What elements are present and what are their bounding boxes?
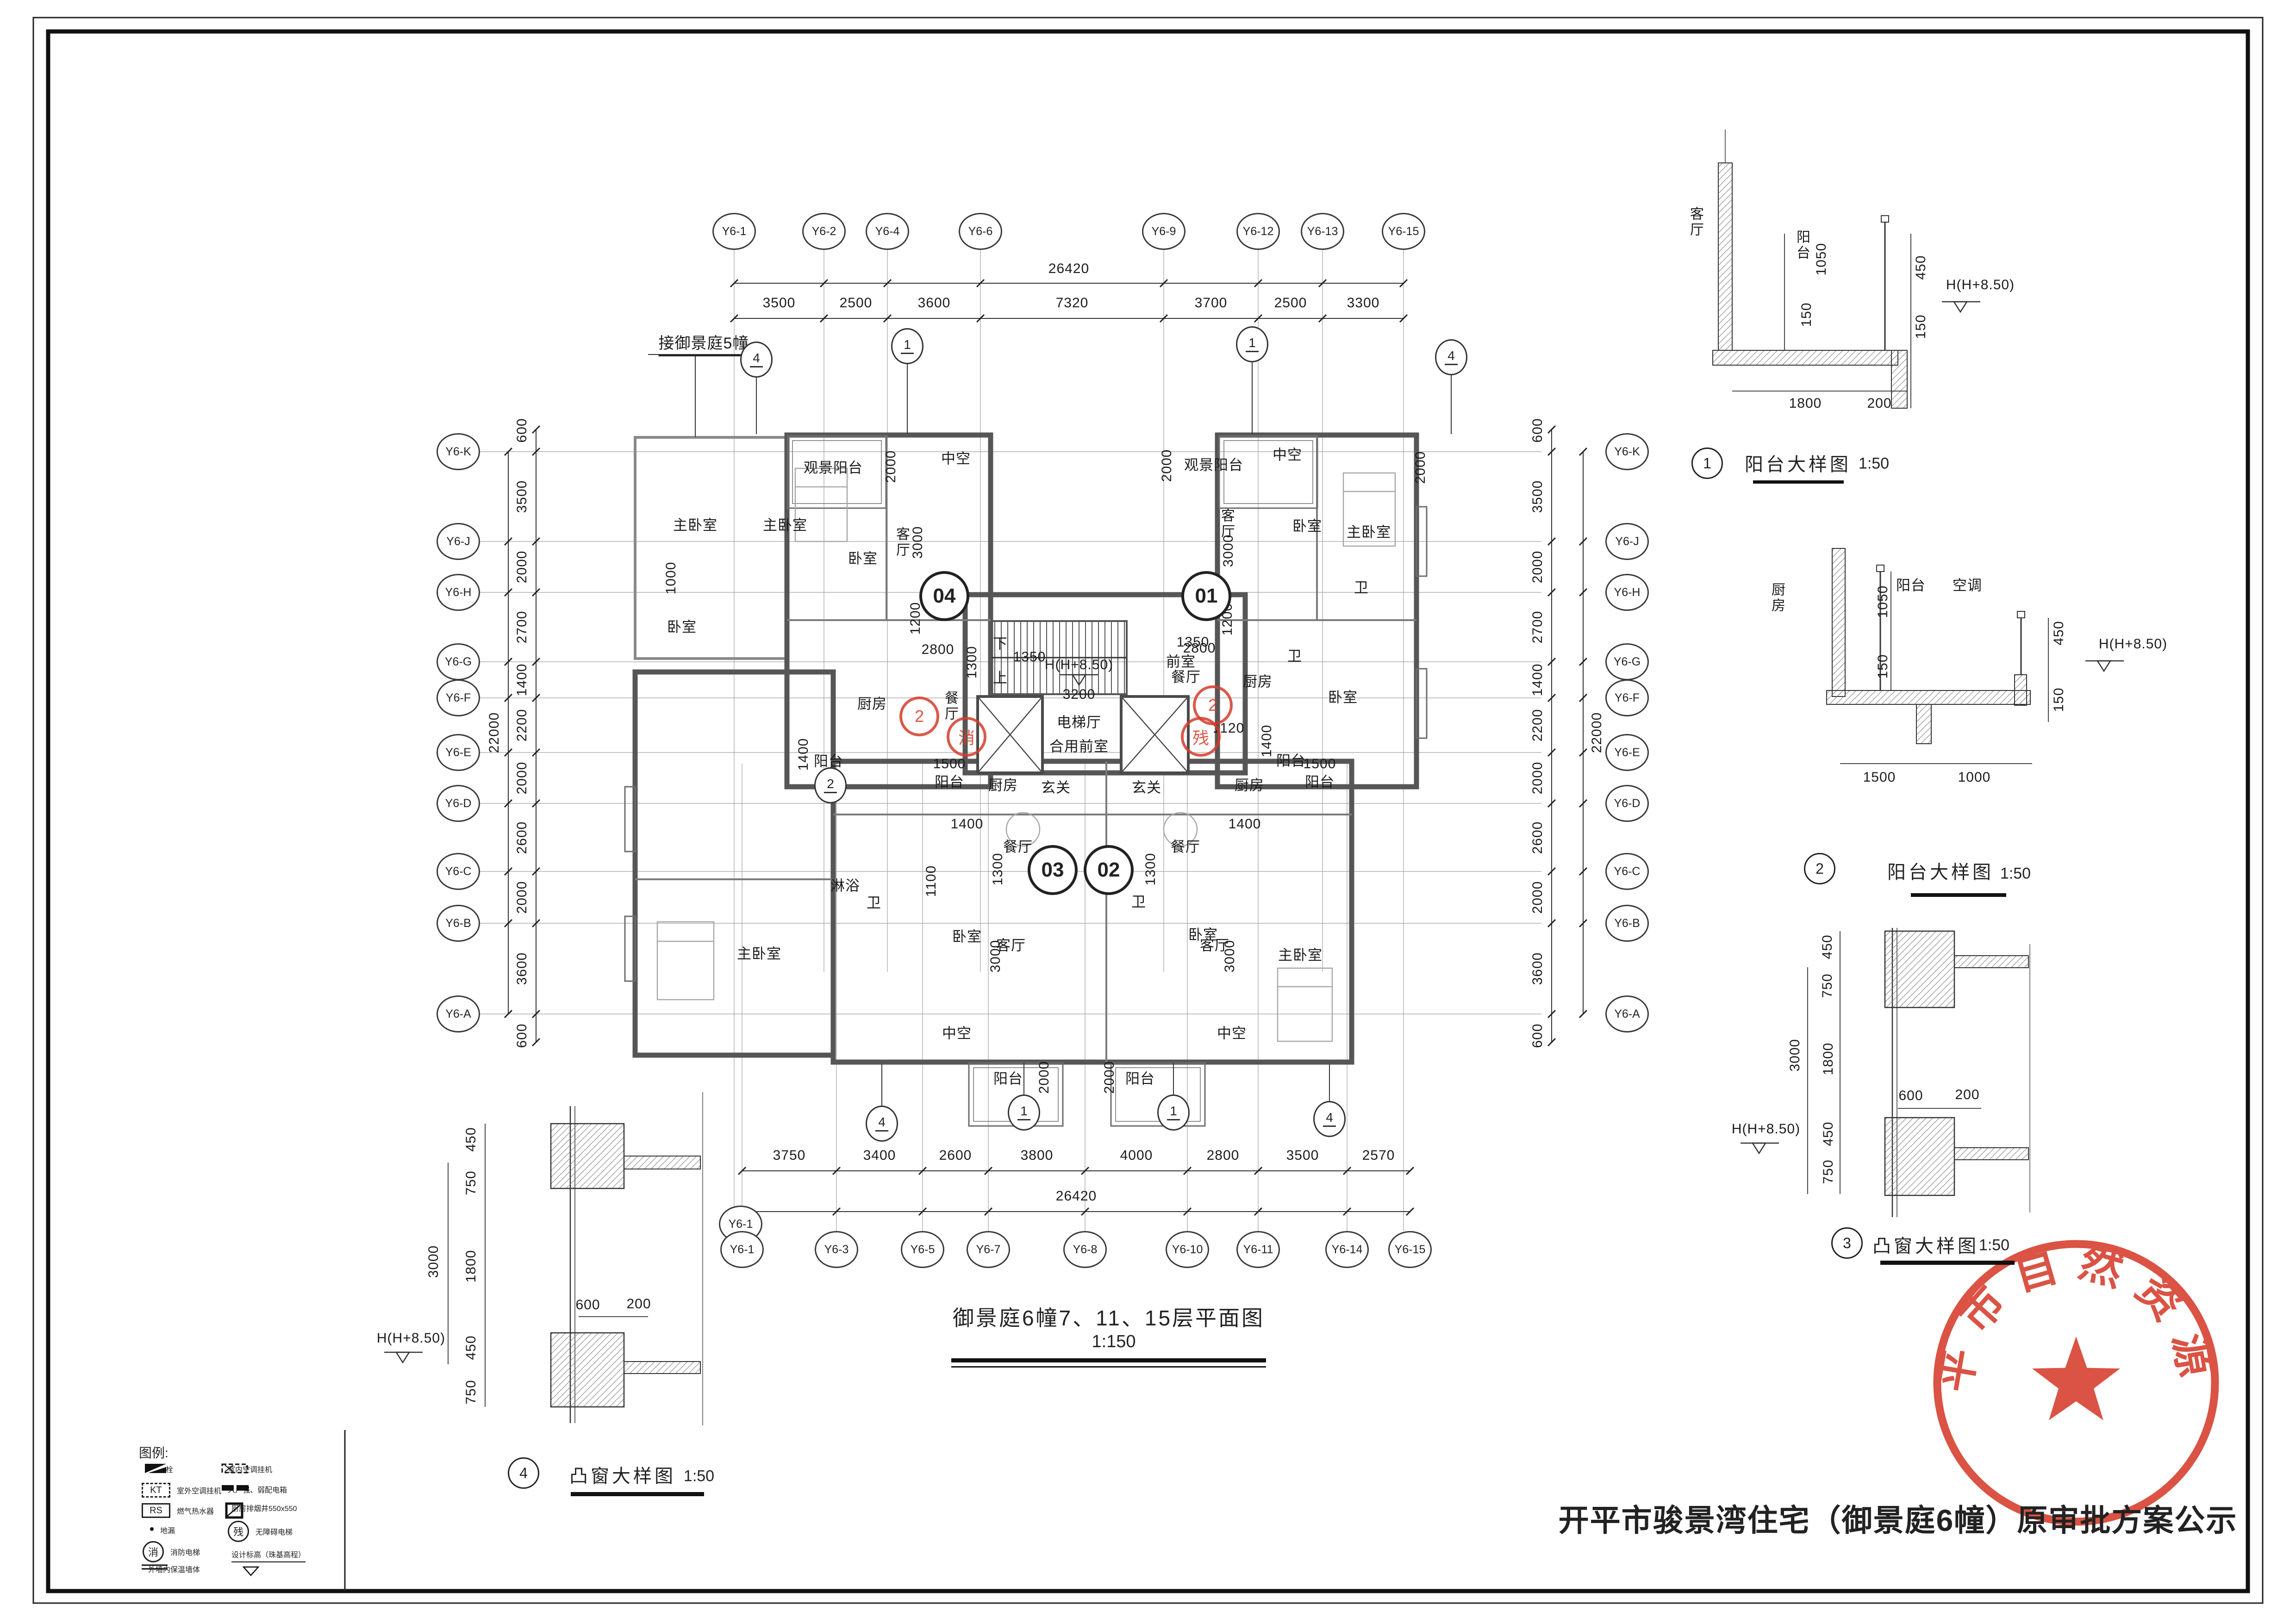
plan-label: 450 [2051, 621, 2067, 645]
plan-label: 2600 [939, 1148, 972, 1163]
plan-label: 中空 [942, 1022, 972, 1043]
plan-label: 4000 [1120, 1148, 1153, 1163]
plan-label: 3500 [1530, 480, 1546, 513]
axis-bubble: Y6-12 [1236, 213, 1280, 250]
plan-label: 上 [993, 666, 1008, 687]
plan-label: 600 [514, 418, 530, 442]
plan-label: 1200 [908, 602, 923, 635]
plan-label: 1400 [1530, 664, 1546, 696]
plan-label: 600 [575, 1297, 600, 1313]
plan-label: 200 [626, 1296, 651, 1312]
plan-label: 卧室 [952, 925, 982, 946]
detail-2-title: 阳台大样图 [1887, 857, 1994, 884]
axis-bubble: Y6-F [1605, 679, 1649, 716]
plan-label: 3300 [1347, 295, 1380, 311]
axis-bubble: Y6-10 [1166, 1231, 1209, 1268]
plan-label: 2800 [922, 642, 955, 658]
axis-bubble: Y6-9 [1142, 213, 1185, 250]
plan-label: 3600 [1530, 952, 1546, 985]
axis-bubble: Y6-G [1605, 643, 1649, 680]
detail-4-linework [448, 1092, 703, 1425]
plan-label: 2800 [1207, 1148, 1240, 1163]
detail-3-number: 3 [1831, 1227, 1863, 1259]
plan-label: 1400 [1229, 816, 1261, 832]
legend-item-floor-drain: 地漏 [147, 1524, 175, 1536]
axis-bubble: Y6-1 [712, 213, 756, 250]
plan-caption: 御景庭6幢7、11、15层平面图1:150 [951, 1301, 1266, 1368]
sheet-title: 开平市骏景湾住宅（御景庭6幢）原审批方案公示 [1541, 1496, 2254, 1540]
plan-label: 餐厅 [1171, 835, 1200, 856]
plan-label: 电梯厅 [1057, 711, 1101, 732]
plan-label: 2500 [840, 295, 873, 311]
plan-label: 厨房 [1766, 582, 1787, 614]
legend-label: 无障碍电梯 [256, 1526, 293, 1537]
plan-label: 主卧室 [1278, 944, 1323, 964]
plan-label: 750 [1820, 973, 1835, 998]
detail-4-underline [571, 1492, 704, 1496]
axis-bubble: Y6-K [437, 433, 480, 470]
plan-label: 3500 [1286, 1148, 1319, 1163]
detail-ref-marker: 1 [1236, 326, 1268, 362]
plan-label: 750 [463, 1170, 479, 1195]
plan-label: 450 [1913, 255, 1929, 280]
plan-label: 卫 [1354, 576, 1369, 597]
detail-3-scale: 1:50 [1979, 1237, 2009, 1255]
plan-label: 1000 [1958, 770, 1991, 785]
axis-bubble: Y6-E [1605, 734, 1649, 771]
plan-label: 卧室 [1292, 515, 1322, 535]
axis-bubble: Y6-1 [720, 1231, 764, 1268]
detail-3-linework [1808, 928, 2030, 1217]
detail-ref-marker: 1 [891, 328, 923, 364]
plan-label: 3600 [918, 295, 951, 311]
axis-bubble: Y6-B [437, 905, 480, 942]
accessible-elevator-icon: 残 [228, 1521, 249, 1542]
plan-label: 厨房 [1243, 670, 1273, 691]
plan-label: 中空 [1273, 443, 1302, 464]
leader-lines [648, 354, 1451, 1108]
axis-bubble: Y6-A [437, 995, 480, 1032]
plan-label: 1350 [1013, 649, 1046, 665]
stamp-star-icon [2032, 1337, 2120, 1420]
plan-label: 2000 [883, 450, 899, 483]
legend-item-accessible-elevator: 残 无障碍电梯 [228, 1521, 293, 1542]
axis-bubble: Y6-D [1605, 785, 1649, 822]
detail-2-scale: 1:50 [2000, 865, 2031, 883]
plan-label: 2000 [1036, 1061, 1052, 1094]
plan-label: 主卧室 [737, 942, 781, 963]
plan-label: 3500 [763, 295, 796, 311]
plan-label: 2700 [514, 611, 530, 644]
detail-4-title: 凸窗大样图 [569, 1461, 676, 1488]
plan-label: 2000 [1530, 551, 1546, 584]
plan-label: 3000 [1221, 535, 1236, 567]
plan-label: 前室 [1166, 650, 1196, 671]
detail-1-scale: 1:50 [1859, 455, 1889, 473]
plan-label: 客厅 [891, 527, 911, 558]
plan-label: 1500 [933, 756, 966, 772]
legend-label: 室外空调挂机 [177, 1485, 221, 1496]
outdoor-ac-icon: KT [142, 1483, 170, 1498]
plan-label: 餐厅 [940, 690, 960, 722]
axis-bubble: Y6-3 [815, 1231, 858, 1268]
plan-label: 中空 [941, 447, 971, 468]
plan-label: 450 [463, 1127, 479, 1151]
plan-label: 2000 [1413, 451, 1429, 484]
plan-label: 1800 [1821, 1043, 1836, 1076]
plan-label: 1300 [964, 646, 980, 679]
plan-label: 厨房 [1235, 774, 1264, 795]
plan-label: 2000 [514, 881, 530, 914]
plan-label: 200 [1955, 1087, 1979, 1103]
plan-label: 450 [1820, 934, 1835, 959]
detail-1-title: 阳台大样图 [1745, 449, 1851, 476]
plan-label: 450 [1821, 1121, 1836, 1146]
plan-label: 2000 [1530, 881, 1546, 914]
plan-label: 600 [1530, 418, 1546, 442]
detail-3-underline [1880, 1261, 2015, 1265]
axis-bubble: Y6-J [1605, 523, 1649, 560]
plan-label: 1100 [923, 865, 939, 897]
plan-label: 3600 [514, 952, 530, 985]
detail-4-scale: 1:50 [684, 1468, 714, 1486]
plan-label: 450 [463, 1335, 479, 1360]
axis-bubble: Y6-K [1605, 433, 1649, 470]
drawing-sheet: 开平市自然资源局 接御景庭5幢 御景庭6幢7、11、15层平面图1:150 开平… [0, 0, 2296, 1623]
detail-ref-marker: 4 [866, 1106, 898, 1142]
plan-label: 2600 [1530, 821, 1546, 854]
legend-item-outdoor-ac: KT 室外空调挂机 [142, 1483, 221, 1498]
plan-label: 2700 [1530, 611, 1546, 644]
plan-label: 阳台 [993, 1067, 1023, 1088]
plan-label: H(H+8.50) [2099, 636, 2167, 652]
plan-label: 600 [1898, 1088, 1923, 1104]
legend-label: 地漏 [160, 1524, 175, 1536]
plan-label: 1800 [463, 1250, 479, 1283]
legend-item-exhaust-shaft: 厨房排烟井550x550 [225, 1502, 297, 1513]
plan-label: H(H+8.50) [377, 1331, 445, 1346]
plan-label: H(H+8.50) [1732, 1121, 1800, 1137]
plan-label: 150 [1913, 314, 1929, 339]
axis-bubble: Y6-H [437, 574, 480, 611]
adjacent-building-note: 接御景庭5幢 [659, 330, 749, 356]
plan-label: 阳台 [1896, 574, 1926, 595]
plan-label: 厨房 [857, 692, 887, 713]
plan-label: 1400 [951, 816, 984, 832]
plan-label: 1300 [1143, 853, 1159, 886]
plan-label: 阳台 [1305, 771, 1335, 791]
plan-label: 1300 [990, 853, 1006, 886]
plan-label: 3800 [1021, 1148, 1054, 1163]
plan-label: 阳台 [1791, 230, 1812, 261]
plan-label: 玄关 [1041, 776, 1071, 797]
axis-bubble: Y6-8 [1063, 1231, 1107, 1268]
plan-label: 3750 [773, 1148, 806, 1163]
plan-label: 客厅 [1685, 206, 1705, 238]
plan-label: 卫 [1131, 890, 1146, 911]
plan-label: 主卧室 [673, 514, 717, 535]
plan-label: 合用前室 [1049, 735, 1109, 756]
detail-2-linework [1827, 548, 2048, 764]
plan-label: 3000 [1222, 940, 1238, 973]
plan-label: 下 [993, 632, 1008, 653]
detail-ref-marker: 4 [740, 342, 773, 378]
detail-2-number: 2 [1804, 853, 1835, 884]
plan-label: 3700 [1195, 295, 1228, 311]
plan-label: 2200 [1530, 709, 1546, 742]
axis-bubble: Y6-2 [802, 213, 846, 250]
plan-label: 2200 [514, 709, 530, 742]
plan-label: 1000 [663, 562, 679, 595]
plan-label: 1350 [1177, 634, 1210, 650]
plan-label: 2570 [1362, 1148, 1395, 1163]
caption-underline-2 [951, 1366, 1266, 1368]
plan-label: 观景阳台 [804, 456, 863, 477]
legend-item-design-level: 设计标高（珠基高程） [231, 1548, 306, 1562]
axis-bubble: Y6-11 [1236, 1231, 1280, 1268]
axis-bubble: Y6-A [1605, 995, 1649, 1032]
plan-label: 1400 [514, 664, 530, 696]
plan-label: 阳台 [1125, 1067, 1155, 1088]
plan-caption-text: 御景庭6幢7、11、15层平面图 [953, 1306, 1265, 1330]
plan-label: 3000 [988, 940, 1004, 973]
detail-1-linework [1713, 130, 1911, 408]
plan-label: 空调 [1953, 574, 1982, 595]
elevator-mark: 残 [1181, 717, 1221, 757]
plan-label: 26420 [1048, 261, 1089, 277]
plan-label: 2000 [514, 762, 530, 795]
axis-bubble: Y6-13 [1301, 213, 1344, 250]
plan-label: 淋浴 [830, 874, 860, 895]
plan-label: 阳台 [1276, 749, 1306, 770]
legend-item-dist-box: 入户强、弱配电箱 [221, 1484, 287, 1495]
fire-elevator-icon: 消 [143, 1541, 164, 1562]
detail-1-number: 1 [1691, 448, 1723, 479]
plan-label: 1050 [1814, 243, 1829, 276]
plan-label: 3000 [426, 1245, 442, 1278]
plan-label: 卧室 [1188, 923, 1218, 944]
plan-label: 主卧室 [763, 514, 807, 535]
axis-bubble: Y6-J [437, 523, 480, 560]
plan-label: 600 [514, 1023, 530, 1048]
caption-underline [951, 1358, 1266, 1362]
legend-item-gas-heater: RS 燃气热水器 [142, 1503, 214, 1518]
legend-item-insulated-wall: 外墙内保温墙体 [142, 1563, 200, 1574]
plan-label: 厨房 [988, 774, 1018, 795]
axis-bubble: Y6-15 [1382, 213, 1425, 250]
detail-ref-marker: 4 [1435, 339, 1467, 375]
plan-label: 卫 [867, 891, 881, 912]
legend-title: 图例: [139, 1443, 398, 1461]
axis-bubble: Y6-6 [959, 213, 1002, 250]
plan-label: 2600 [514, 821, 530, 854]
plan-label: 600 [1530, 1023, 1546, 1048]
detail-1-underline [1753, 480, 1844, 484]
plan-label: 玄关 [1132, 776, 1161, 797]
plan-label: 卫 [1287, 645, 1302, 665]
axis-bubble: Y6-C [437, 853, 480, 890]
axis-bubble: Y6-4 [866, 213, 909, 250]
plan-label: 3000 [910, 526, 926, 559]
plan-label: 餐厅 [1003, 835, 1033, 856]
axis-bubble: Y6-15 [1388, 1231, 1432, 1268]
plan-label: 卧室 [667, 616, 697, 636]
legend-item-fire-elevator: 消 消防电梯 [143, 1541, 200, 1562]
plan-label: 150 [1799, 302, 1815, 327]
plan-label: 3500 [514, 480, 530, 513]
plan-label: 2000 [1159, 449, 1175, 482]
detail-ref-marker: 1 [1008, 1094, 1040, 1131]
plan-label: 3000 [1787, 1039, 1803, 1072]
axis-bubble: Y6-5 [901, 1231, 944, 1268]
plan-label: 1500 [1863, 770, 1896, 785]
axis-bubble: Y6-14 [1325, 1231, 1369, 1268]
axis-bubble: Y6-C [1605, 853, 1649, 890]
plan-label: H(H+8.50) [1045, 657, 1113, 673]
plan-label: 750 [463, 1380, 479, 1404]
plan-label: 3200 [1063, 687, 1096, 703]
plan-label: 主卧室 [1347, 521, 1391, 541]
unit-number: 03 [1028, 845, 1078, 895]
axis-bubble: Y6-E [437, 734, 480, 771]
legend-label: 燃气热水器 [177, 1505, 214, 1516]
plan-label: 2000 [1102, 1061, 1117, 1094]
plan-label: 中空 [1217, 1022, 1247, 1043]
plan-label: 22000 [1589, 712, 1605, 753]
unit-number: 04 [919, 571, 969, 621]
plan-label: 1800 [1789, 396, 1822, 411]
axis-bubble: Y6-7 [967, 1231, 1010, 1268]
plan-label: 3400 [863, 1148, 896, 1163]
axis-bubble: Y6-G [437, 643, 480, 680]
plan-label: 卧室 [1328, 686, 1358, 707]
plan-label: 1400 [1259, 725, 1275, 758]
plan-label: 观景阳台 [1184, 454, 1243, 474]
plan-caption-scale: 1:150 [1092, 1332, 1136, 1351]
plan-label: H(H+8.50) [1946, 277, 2015, 293]
gas-heater-icon: RS [142, 1503, 170, 1518]
plan-label: 1050 [1875, 585, 1891, 618]
elevator-mark: 消 [947, 717, 986, 757]
plan-label: 150 [2051, 687, 2067, 712]
plan-label: 150 [1875, 654, 1891, 678]
plan-label: 22000 [487, 712, 502, 753]
plan-label: 2000 [514, 551, 530, 584]
unit-number: 02 [1084, 845, 1134, 895]
plan-label: 阳台 [935, 771, 964, 791]
plan-label: 750 [1821, 1159, 1836, 1184]
plan-label: 26420 [1056, 1188, 1097, 1204]
plan-label: 2000 [1530, 762, 1546, 795]
axis-bubble: Y6-H [1605, 574, 1649, 611]
detail-ref-marker: 2 [814, 767, 847, 803]
detail-2-underline [1911, 893, 2006, 897]
legend-label: 消防电梯 [170, 1546, 200, 1557]
legend-item-hydrant: 消火栓 [144, 1463, 173, 1474]
unit-number: 01 [1181, 571, 1231, 621]
axis-bubble: Y6-D [437, 785, 480, 822]
legend-item-indoor-ac: 室内空调挂机 [221, 1463, 272, 1474]
plan-label: 200 [1867, 396, 1891, 411]
plan-label: 1400 [796, 738, 811, 771]
plan-label: 1500 [1304, 756, 1336, 772]
detail-3-title: 凸窗大样图 [1872, 1231, 1979, 1258]
legend-label: 设计标高（珠基高程） [231, 1548, 306, 1562]
detail-ref-marker: 4 [1313, 1101, 1346, 1137]
detail-4-number: 4 [508, 1457, 539, 1489]
plan-label: 卧室 [848, 547, 878, 568]
plan-label: 2500 [1274, 295, 1307, 311]
red-section-marker: 2 [899, 696, 939, 736]
plan-label: 7320 [1056, 295, 1089, 311]
detail-ref-marker: 1 [1157, 1094, 1190, 1131]
axis-bubble: Y6-B [1605, 905, 1649, 942]
axis-bubble: Y6-F [437, 679, 480, 716]
